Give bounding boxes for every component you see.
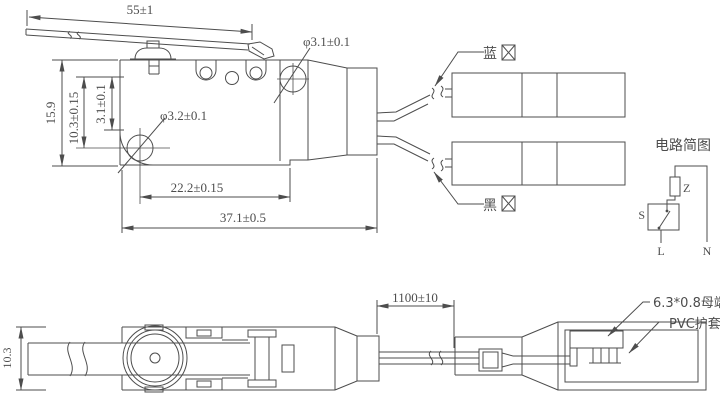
terminal-assembly bbox=[455, 322, 706, 390]
dim-lever-text: 55±1 bbox=[127, 2, 154, 17]
blue-wire-label: 蓝 bbox=[435, 45, 515, 86]
dim-hole-center-height: 10.3±0.15 bbox=[66, 92, 81, 145]
sleeve-label-text: PVC护套 bbox=[669, 316, 720, 332]
load-resistor bbox=[670, 177, 680, 196]
lever-arm bbox=[26, 29, 274, 59]
main-view: φ3.1±0.1 φ3.2±0.1 55±1 bbox=[26, 2, 377, 233]
dim-body-height: 15.9 bbox=[43, 102, 58, 125]
switch-symbol-box bbox=[648, 204, 679, 230]
dim-mount-hole: φ3.2±0.1 bbox=[160, 108, 207, 123]
micro-switch-technical-drawing: φ3.1±0.1 φ3.2±0.1 55±1 bbox=[0, 0, 720, 400]
dim-total-length: 37.1±0.5 bbox=[220, 210, 266, 225]
black-wire-label: 黑 bbox=[434, 172, 515, 214]
drawing-canvas: φ3.1±0.1 φ3.2±0.1 55±1 bbox=[0, 0, 720, 400]
circuit-title: 电路简图 bbox=[655, 137, 711, 154]
neutral-terminal-label: N bbox=[703, 244, 712, 258]
cable-bushing-bottom bbox=[357, 336, 379, 381]
dim-lever-width: 10.3 bbox=[0, 327, 46, 390]
crossed-box-icon bbox=[502, 196, 515, 211]
cable bbox=[379, 351, 479, 365]
dim-top-hole: φ3.1±0.1 bbox=[303, 34, 350, 49]
terminal-labels: 6.3*0.8母端 PVC护套 bbox=[608, 296, 720, 353]
terminal-ears bbox=[196, 60, 266, 85]
terminal-spec-text: 6.3*0.8母端 bbox=[653, 296, 720, 311]
ear-hole bbox=[200, 67, 212, 79]
circuit-diagram: 电路简图 Z S L N bbox=[638, 137, 711, 258]
load-label: Z bbox=[683, 181, 690, 195]
lever-hinge bbox=[248, 42, 274, 59]
line-terminal-label: L bbox=[657, 244, 664, 258]
switch-body-bottom bbox=[122, 325, 379, 392]
terminal-slot bbox=[282, 345, 294, 372]
blue-label-text: 蓝 bbox=[483, 46, 497, 62]
pvc-sleeve bbox=[558, 322, 706, 390]
cable-bushing-cap bbox=[347, 68, 377, 155]
switch-blade bbox=[659, 211, 670, 228]
black-wire bbox=[377, 136, 625, 185]
dim-hole-offset: 3.1±0.1 bbox=[93, 84, 108, 124]
crossed-box-icon bbox=[502, 45, 515, 60]
dim-hole-to-end: 22.2±0.15 bbox=[171, 180, 224, 195]
dim-lever-length: 55±1 bbox=[27, 2, 252, 40]
blue-wire-connector bbox=[452, 73, 625, 117]
plunger bbox=[130, 41, 176, 74]
black-wire-connector bbox=[452, 142, 625, 185]
plunger-boot-circle bbox=[123, 326, 187, 390]
top-hole: φ3.1±0.1 bbox=[274, 34, 350, 103]
bottom-view: 10.3 bbox=[0, 290, 720, 392]
female-terminal bbox=[570, 331, 623, 348]
dim-cable-length: 1100±10 bbox=[377, 290, 454, 348]
dim-cable-length-text: 1100±10 bbox=[392, 290, 438, 305]
switch-label: S bbox=[638, 208, 645, 222]
left-dimensions: 15.9 10.3±0.15 3.1±0.1 bbox=[43, 60, 124, 166]
black-label-text: 黑 bbox=[483, 198, 497, 214]
bottom-dimensions: 22.2±0.15 37.1±0.5 bbox=[122, 158, 377, 233]
blue-wire bbox=[377, 73, 625, 121]
switch-body bbox=[120, 60, 377, 165]
lever-plate-bottom bbox=[28, 342, 250, 376]
dim-lever-width-text: 10.3 bbox=[0, 348, 14, 369]
small-hole bbox=[226, 72, 239, 85]
wires-and-connectors: 蓝 黑 bbox=[377, 45, 625, 214]
ear-hole bbox=[250, 67, 262, 79]
